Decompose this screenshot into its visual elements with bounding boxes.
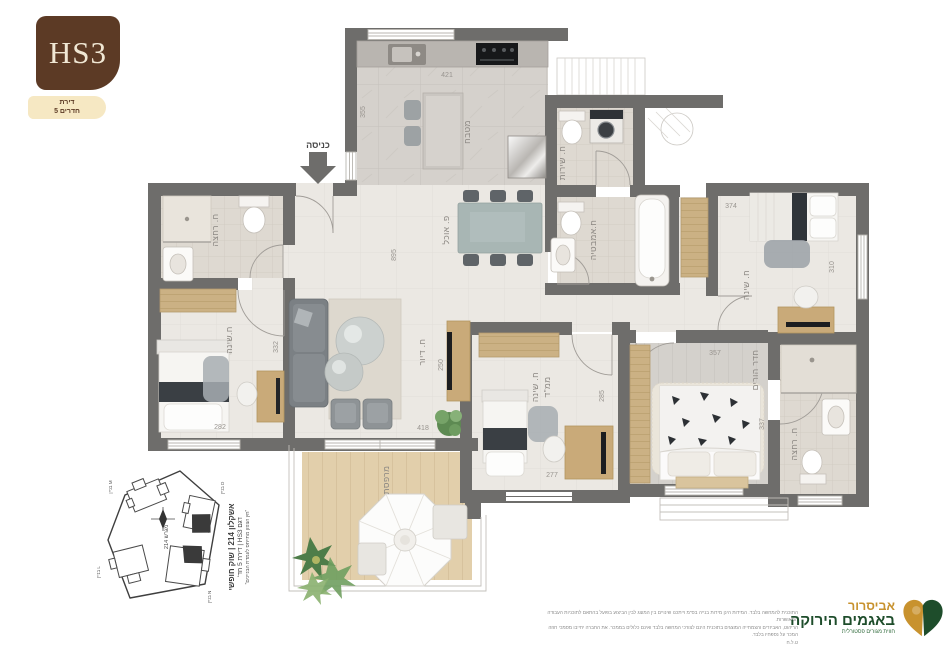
stove bbox=[476, 43, 518, 65]
floorplan-drawing: כניסה מטבח פ. אוכל ח. דיור ח. רחצה ח.שינ… bbox=[0, 0, 950, 650]
dining-furniture bbox=[458, 190, 542, 266]
bed-pillow bbox=[810, 218, 836, 238]
service-room-fixtures bbox=[559, 110, 623, 144]
hall-closet bbox=[681, 198, 708, 277]
living-label: ח. דיור bbox=[417, 339, 427, 366]
monitor bbox=[786, 322, 830, 327]
dining-chair bbox=[517, 190, 533, 202]
dim-421: 421 bbox=[441, 72, 453, 79]
shower-left-label: ח. רחצה bbox=[210, 213, 220, 246]
dining-chair bbox=[517, 254, 533, 266]
wardrobe bbox=[479, 333, 559, 357]
bed-runner bbox=[483, 428, 527, 450]
lot-label: מגרש 214 bbox=[164, 525, 170, 549]
building-l-label: בניין L bbox=[96, 566, 101, 578]
mamad-label-1: ח. שינה bbox=[530, 372, 540, 402]
desk-chair bbox=[794, 286, 818, 308]
bedroom-left-window bbox=[168, 440, 240, 449]
bed-pillow bbox=[810, 196, 836, 216]
toilet bbox=[802, 450, 822, 474]
dim-310: 310 bbox=[829, 261, 836, 273]
bed-runner bbox=[792, 193, 807, 241]
service-label: ח. שירות bbox=[557, 146, 567, 181]
mamad-label-2: ממ"ד bbox=[542, 376, 552, 397]
monitor bbox=[276, 378, 280, 414]
kitchen-counter bbox=[357, 41, 548, 67]
balcony-label: מרפסת bbox=[381, 466, 391, 495]
dim-250: 250 bbox=[438, 359, 445, 371]
brand-tagline: חווית מגורים פסטורלית bbox=[790, 630, 895, 636]
disclaimer: התוכנית להמחשה בלבד. המידות הינן מידות ב… bbox=[540, 610, 798, 647]
dim-332: 332 bbox=[273, 341, 280, 353]
lobby-circle bbox=[661, 113, 693, 145]
coffee-table-small bbox=[325, 353, 363, 391]
heart-logo-icon bbox=[900, 596, 946, 640]
bed-headboard bbox=[482, 390, 528, 402]
master-label: חדר הורים bbox=[750, 350, 760, 391]
dining-chair bbox=[490, 190, 506, 202]
dim-374: 374 bbox=[725, 203, 737, 210]
dim-285: 285 bbox=[599, 390, 606, 402]
desk bbox=[778, 307, 834, 333]
bed-pillow bbox=[668, 452, 710, 476]
siteplan-caption: אשקלון 214 | שוק חופשי דגם HS3 | דירת 5 … bbox=[227, 465, 273, 629]
dim-282: 282 bbox=[214, 424, 226, 431]
disclaimer-line3: ט.ל.ח bbox=[540, 640, 798, 647]
dining-chair bbox=[463, 190, 479, 202]
wardrobe bbox=[630, 345, 650, 483]
brand-logo: אביסרור באגמים הירוקה חווית מגורים פסטור… bbox=[770, 596, 946, 640]
caption-project: אשקלון 214 | שוק חופשי bbox=[227, 465, 236, 629]
building-m-label: בניין M bbox=[108, 480, 113, 493]
dining-label: פ. אוכל bbox=[441, 215, 451, 244]
bathroom-label: ח.אמבטיה bbox=[588, 220, 598, 260]
ensuite-label: ח. רחצה bbox=[789, 427, 799, 460]
dining-chair bbox=[463, 254, 479, 266]
ensuite-window bbox=[798, 496, 842, 505]
dim-418: 418 bbox=[417, 425, 429, 432]
monitor bbox=[601, 432, 606, 474]
highlighted-unit bbox=[188, 510, 214, 536]
caption-model: דגם HS3 | דירת 5 חד' bbox=[237, 465, 244, 629]
building-n-label: בניין N bbox=[207, 591, 212, 604]
tv bbox=[447, 332, 452, 390]
bedroom-right-label: ח. שינה bbox=[741, 270, 751, 300]
bed-pillows bbox=[486, 452, 524, 476]
dim-357: 357 bbox=[709, 350, 721, 357]
bedroom-rug bbox=[203, 356, 229, 402]
bedroom-right-window bbox=[858, 235, 867, 299]
toilet bbox=[239, 196, 269, 207]
entrance-arrow bbox=[300, 152, 336, 184]
caption-note: "חץ הצפון מתייחס לעמדת הבניינים" bbox=[245, 465, 251, 629]
floorplan-page: HS3 דירת 5 חדרים bbox=[0, 0, 950, 650]
kitchen-window bbox=[368, 30, 454, 40]
desk-chair bbox=[237, 382, 257, 406]
dining-chair bbox=[490, 254, 506, 266]
disclaimer-line2: הריהוט, האביזרים והצמחייה המוצגים בתוכני… bbox=[540, 625, 798, 640]
desk-chair bbox=[543, 436, 565, 462]
entrance: כניסה bbox=[300, 140, 336, 184]
balcony-sofa bbox=[433, 505, 467, 539]
bedroom-rug bbox=[764, 240, 810, 268]
dim-337: 337 bbox=[759, 418, 766, 430]
entry-side-window bbox=[346, 152, 356, 180]
bed-pillow bbox=[714, 452, 756, 476]
dim-895: 895 bbox=[391, 249, 398, 261]
site-plan: מגרש 214 בניין M בניין D בניין L בניין N bbox=[96, 471, 225, 603]
toilet bbox=[558, 202, 584, 212]
kitchen-label: מטבח bbox=[462, 120, 472, 144]
disclaimer-line1: התוכנית להמחשה בלבד. המידות הינן מידות ב… bbox=[540, 610, 798, 625]
island-stool bbox=[404, 126, 421, 146]
wardrobe bbox=[160, 289, 236, 312]
stairs-outline bbox=[557, 58, 645, 95]
brand-project: באגמים הירוקה bbox=[790, 613, 895, 629]
dim-277: 277 bbox=[546, 472, 558, 479]
bed-headboard bbox=[676, 477, 748, 488]
dim-355: 355 bbox=[360, 106, 367, 118]
bedroom-left-label: ח.שינה bbox=[224, 326, 234, 353]
shower bbox=[781, 345, 856, 393]
balcony-sofa bbox=[358, 543, 386, 575]
toilet bbox=[559, 111, 585, 121]
island-stool bbox=[404, 100, 421, 120]
entrance-label: כניסה bbox=[306, 140, 330, 150]
building-d-label: בניין D bbox=[220, 481, 225, 494]
fridge bbox=[508, 136, 546, 178]
